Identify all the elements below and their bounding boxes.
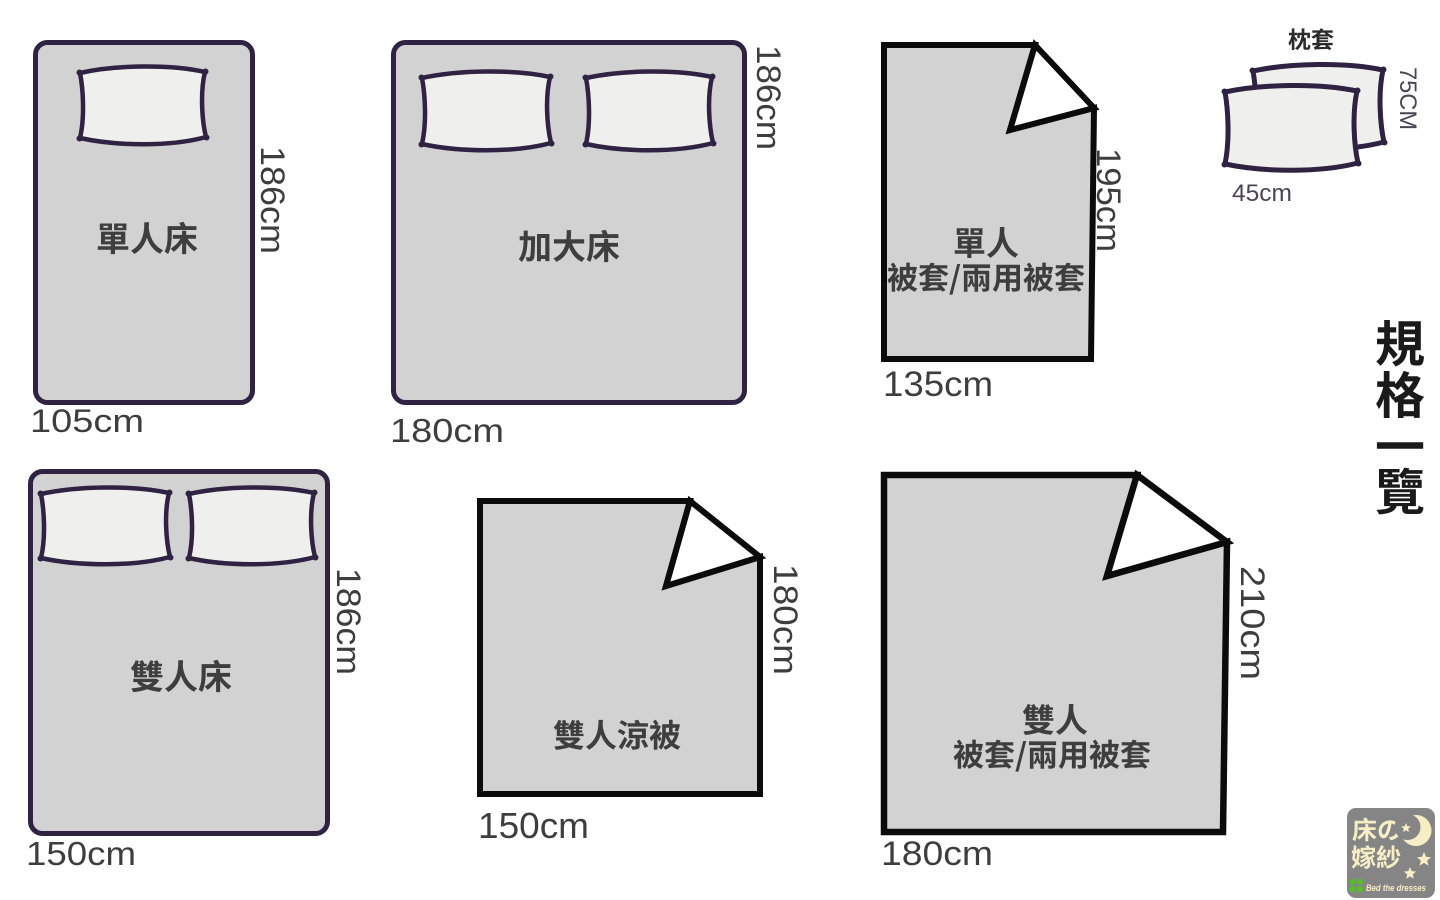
svg-text:150cm: 150cm [478,805,589,846]
svg-text:45cm: 45cm [1232,180,1292,207]
svg-text:135cm: 135cm [883,365,993,404]
svg-text:195cm: 195cm [1089,148,1127,252]
svg-text:186cm: 186cm [749,45,787,150]
svg-text:Bed the dresses: Bed the dresses [1366,883,1426,893]
svg-text:210cm: 210cm [1233,566,1271,680]
svg-text:180cm: 180cm [881,835,993,873]
svg-text:186cm: 186cm [329,568,367,675]
svg-text:75CM: 75CM [1394,67,1421,130]
svg-text:150cm: 150cm [26,835,136,872]
svg-text:180cm: 180cm [766,564,804,675]
svg-text:180cm: 180cm [390,412,504,449]
svg-text:105cm: 105cm [30,403,144,439]
svg-text:186cm: 186cm [253,146,291,254]
